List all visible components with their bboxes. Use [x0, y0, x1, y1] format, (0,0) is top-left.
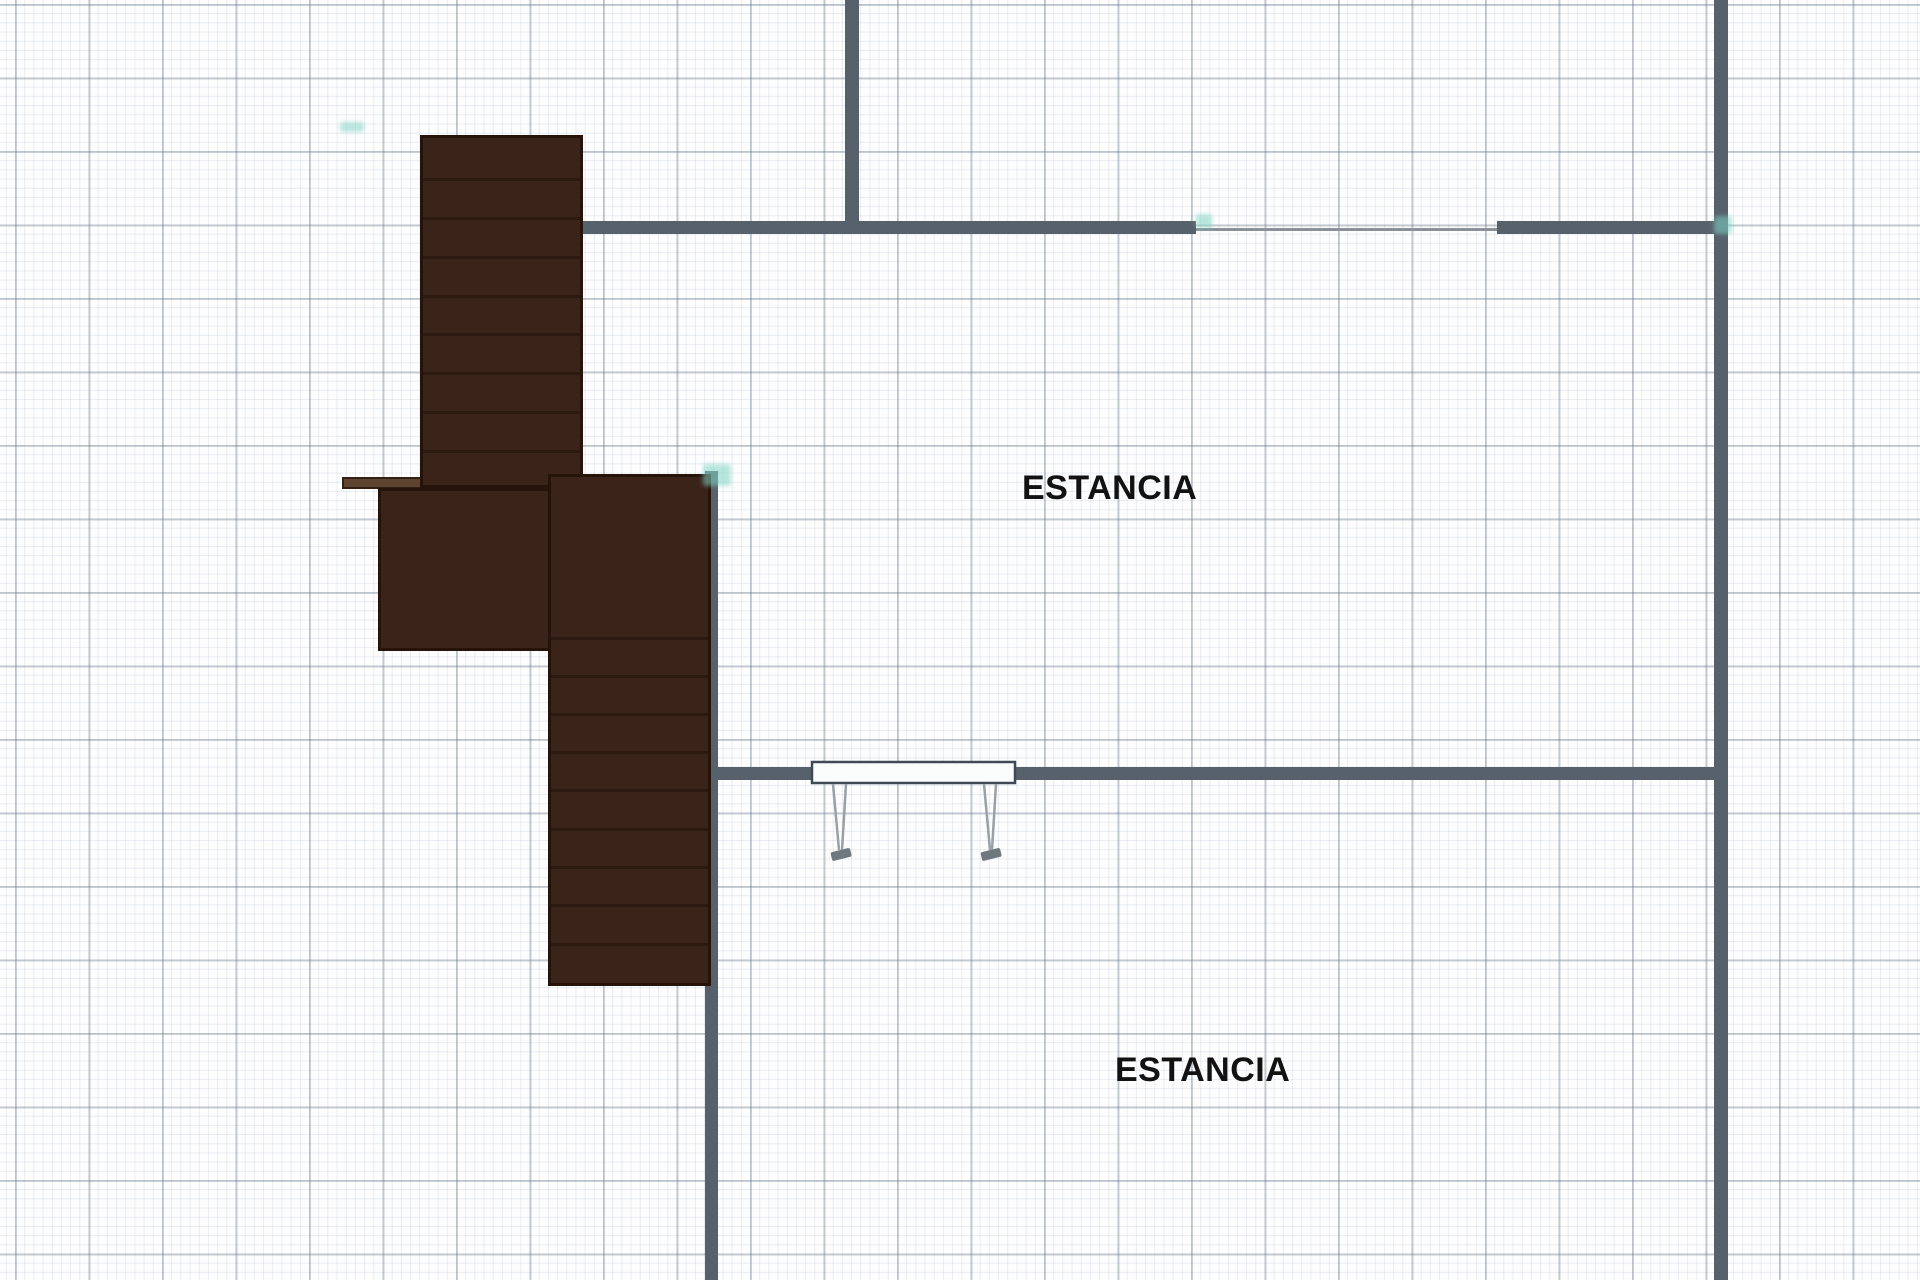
stair-tread [551, 637, 708, 640]
stair-tread [423, 372, 580, 375]
stair-tread [423, 256, 580, 259]
stair-upper-flight[interactable] [420, 135, 583, 488]
endpoint-marker [340, 122, 364, 132]
room-label[interactable]: ESTANCIA [1022, 471, 1197, 505]
doorway-opening-line [1196, 228, 1497, 231]
endpoint-marker [1714, 216, 1732, 234]
stair-tread [423, 450, 580, 453]
stair-tread [423, 411, 580, 414]
table-leg [984, 784, 990, 850]
table-leg [992, 784, 996, 850]
stair-tread [551, 675, 708, 678]
room-label[interactable]: ESTANCIA [1115, 1053, 1290, 1087]
stair-lower-flight[interactable] [548, 474, 711, 986]
wall-upper-horizontal-right[interactable] [1497, 221, 1728, 234]
table-leg [842, 784, 846, 850]
stair-tread [551, 943, 708, 946]
stair-tread [551, 904, 708, 907]
table-foot [830, 848, 852, 862]
stair-tread [423, 178, 580, 181]
table-foot [980, 848, 1002, 862]
floorplan-canvas: ESTANCIAESTANCIA [0, 0, 1920, 1280]
wall-upper-horizontal-left[interactable] [566, 221, 1196, 234]
stair-tread [551, 751, 708, 754]
table-leg [833, 784, 839, 850]
stair-tread [551, 789, 708, 792]
table[interactable] [0, 0, 1920, 1280]
wall-right-vertical[interactable] [1714, 0, 1728, 1280]
wall-middle-horizontal[interactable] [705, 767, 1721, 780]
endpoint-marker [703, 464, 731, 486]
stair-tread [551, 828, 708, 831]
stair-tread [551, 866, 708, 869]
stair-tread [423, 295, 580, 298]
wall-top-vertical[interactable] [845, 0, 859, 234]
stair-tread [423, 217, 580, 220]
endpoint-marker [1196, 214, 1212, 228]
stair-tread [551, 713, 708, 716]
stair-tread [423, 333, 580, 336]
